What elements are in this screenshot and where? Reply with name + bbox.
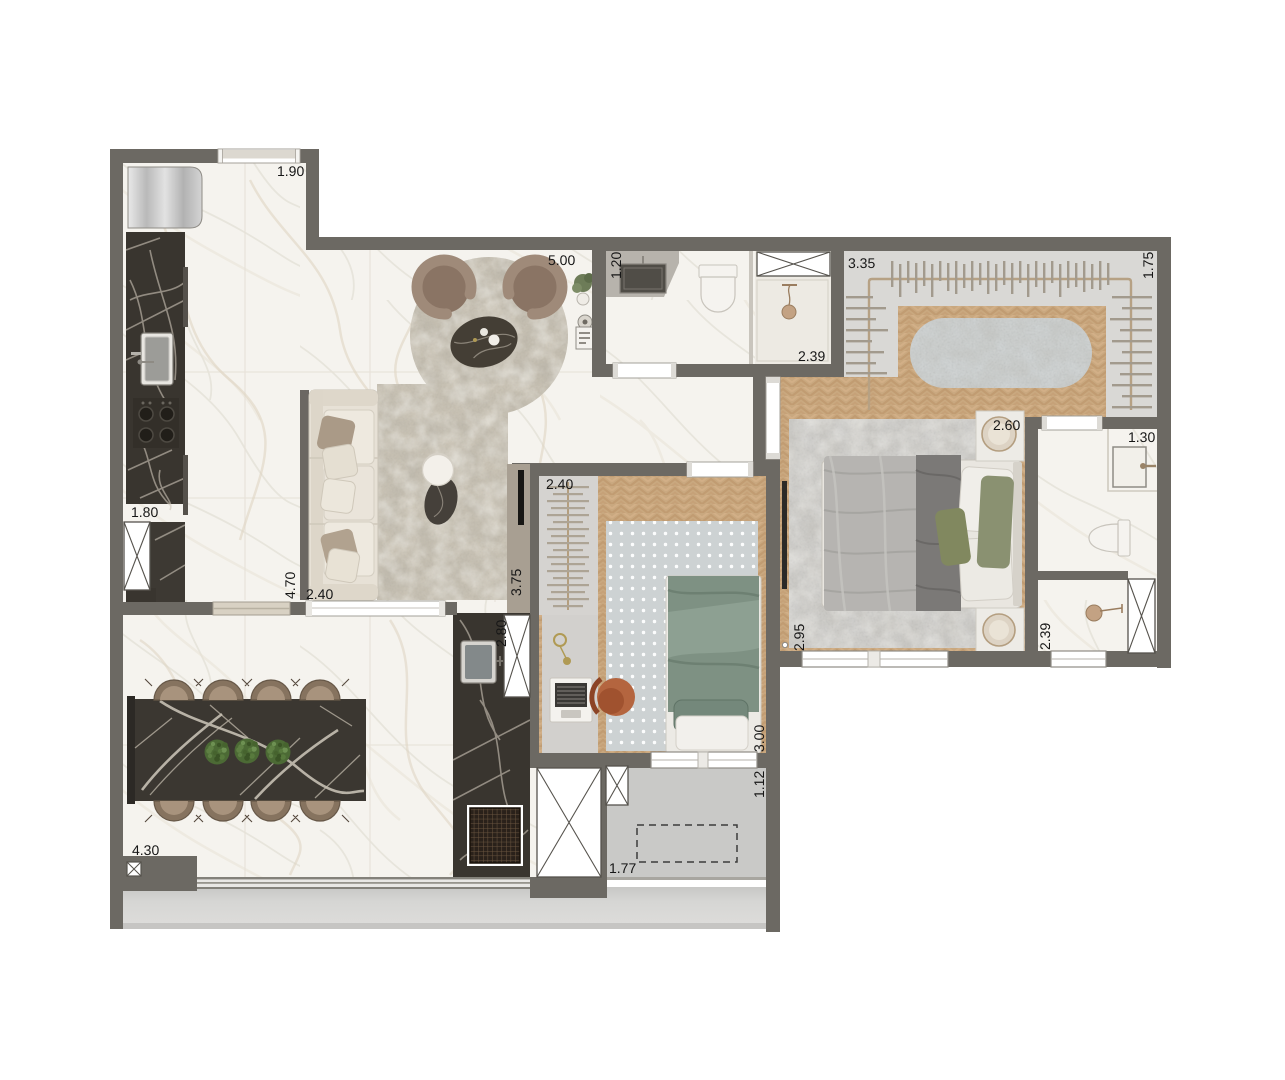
svg-text:1.20: 1.20	[608, 252, 624, 279]
svg-text:2.40: 2.40	[546, 476, 573, 492]
svg-text:2.39: 2.39	[1037, 623, 1053, 650]
svg-text:1.75: 1.75	[1140, 252, 1156, 279]
svg-text:2.60: 2.60	[993, 417, 1020, 433]
svg-text:1.90: 1.90	[277, 163, 304, 179]
svg-text:3.00: 3.00	[751, 725, 767, 752]
svg-text:1.12: 1.12	[751, 771, 767, 798]
svg-text:3.75: 3.75	[508, 569, 524, 596]
svg-text:4.30: 4.30	[132, 842, 159, 858]
svg-text:1.30: 1.30	[1128, 429, 1155, 445]
svg-text:2.39: 2.39	[798, 348, 825, 364]
svg-text:2.40: 2.40	[306, 586, 333, 602]
svg-text:2.80: 2.80	[493, 620, 509, 647]
svg-text:4.70: 4.70	[282, 572, 298, 599]
svg-text:5.00: 5.00	[548, 252, 575, 268]
svg-text:3.35: 3.35	[848, 255, 875, 271]
svg-text:2.95: 2.95	[791, 624, 807, 651]
svg-text:1.80: 1.80	[131, 504, 158, 520]
svg-text:1.77: 1.77	[609, 860, 636, 876]
